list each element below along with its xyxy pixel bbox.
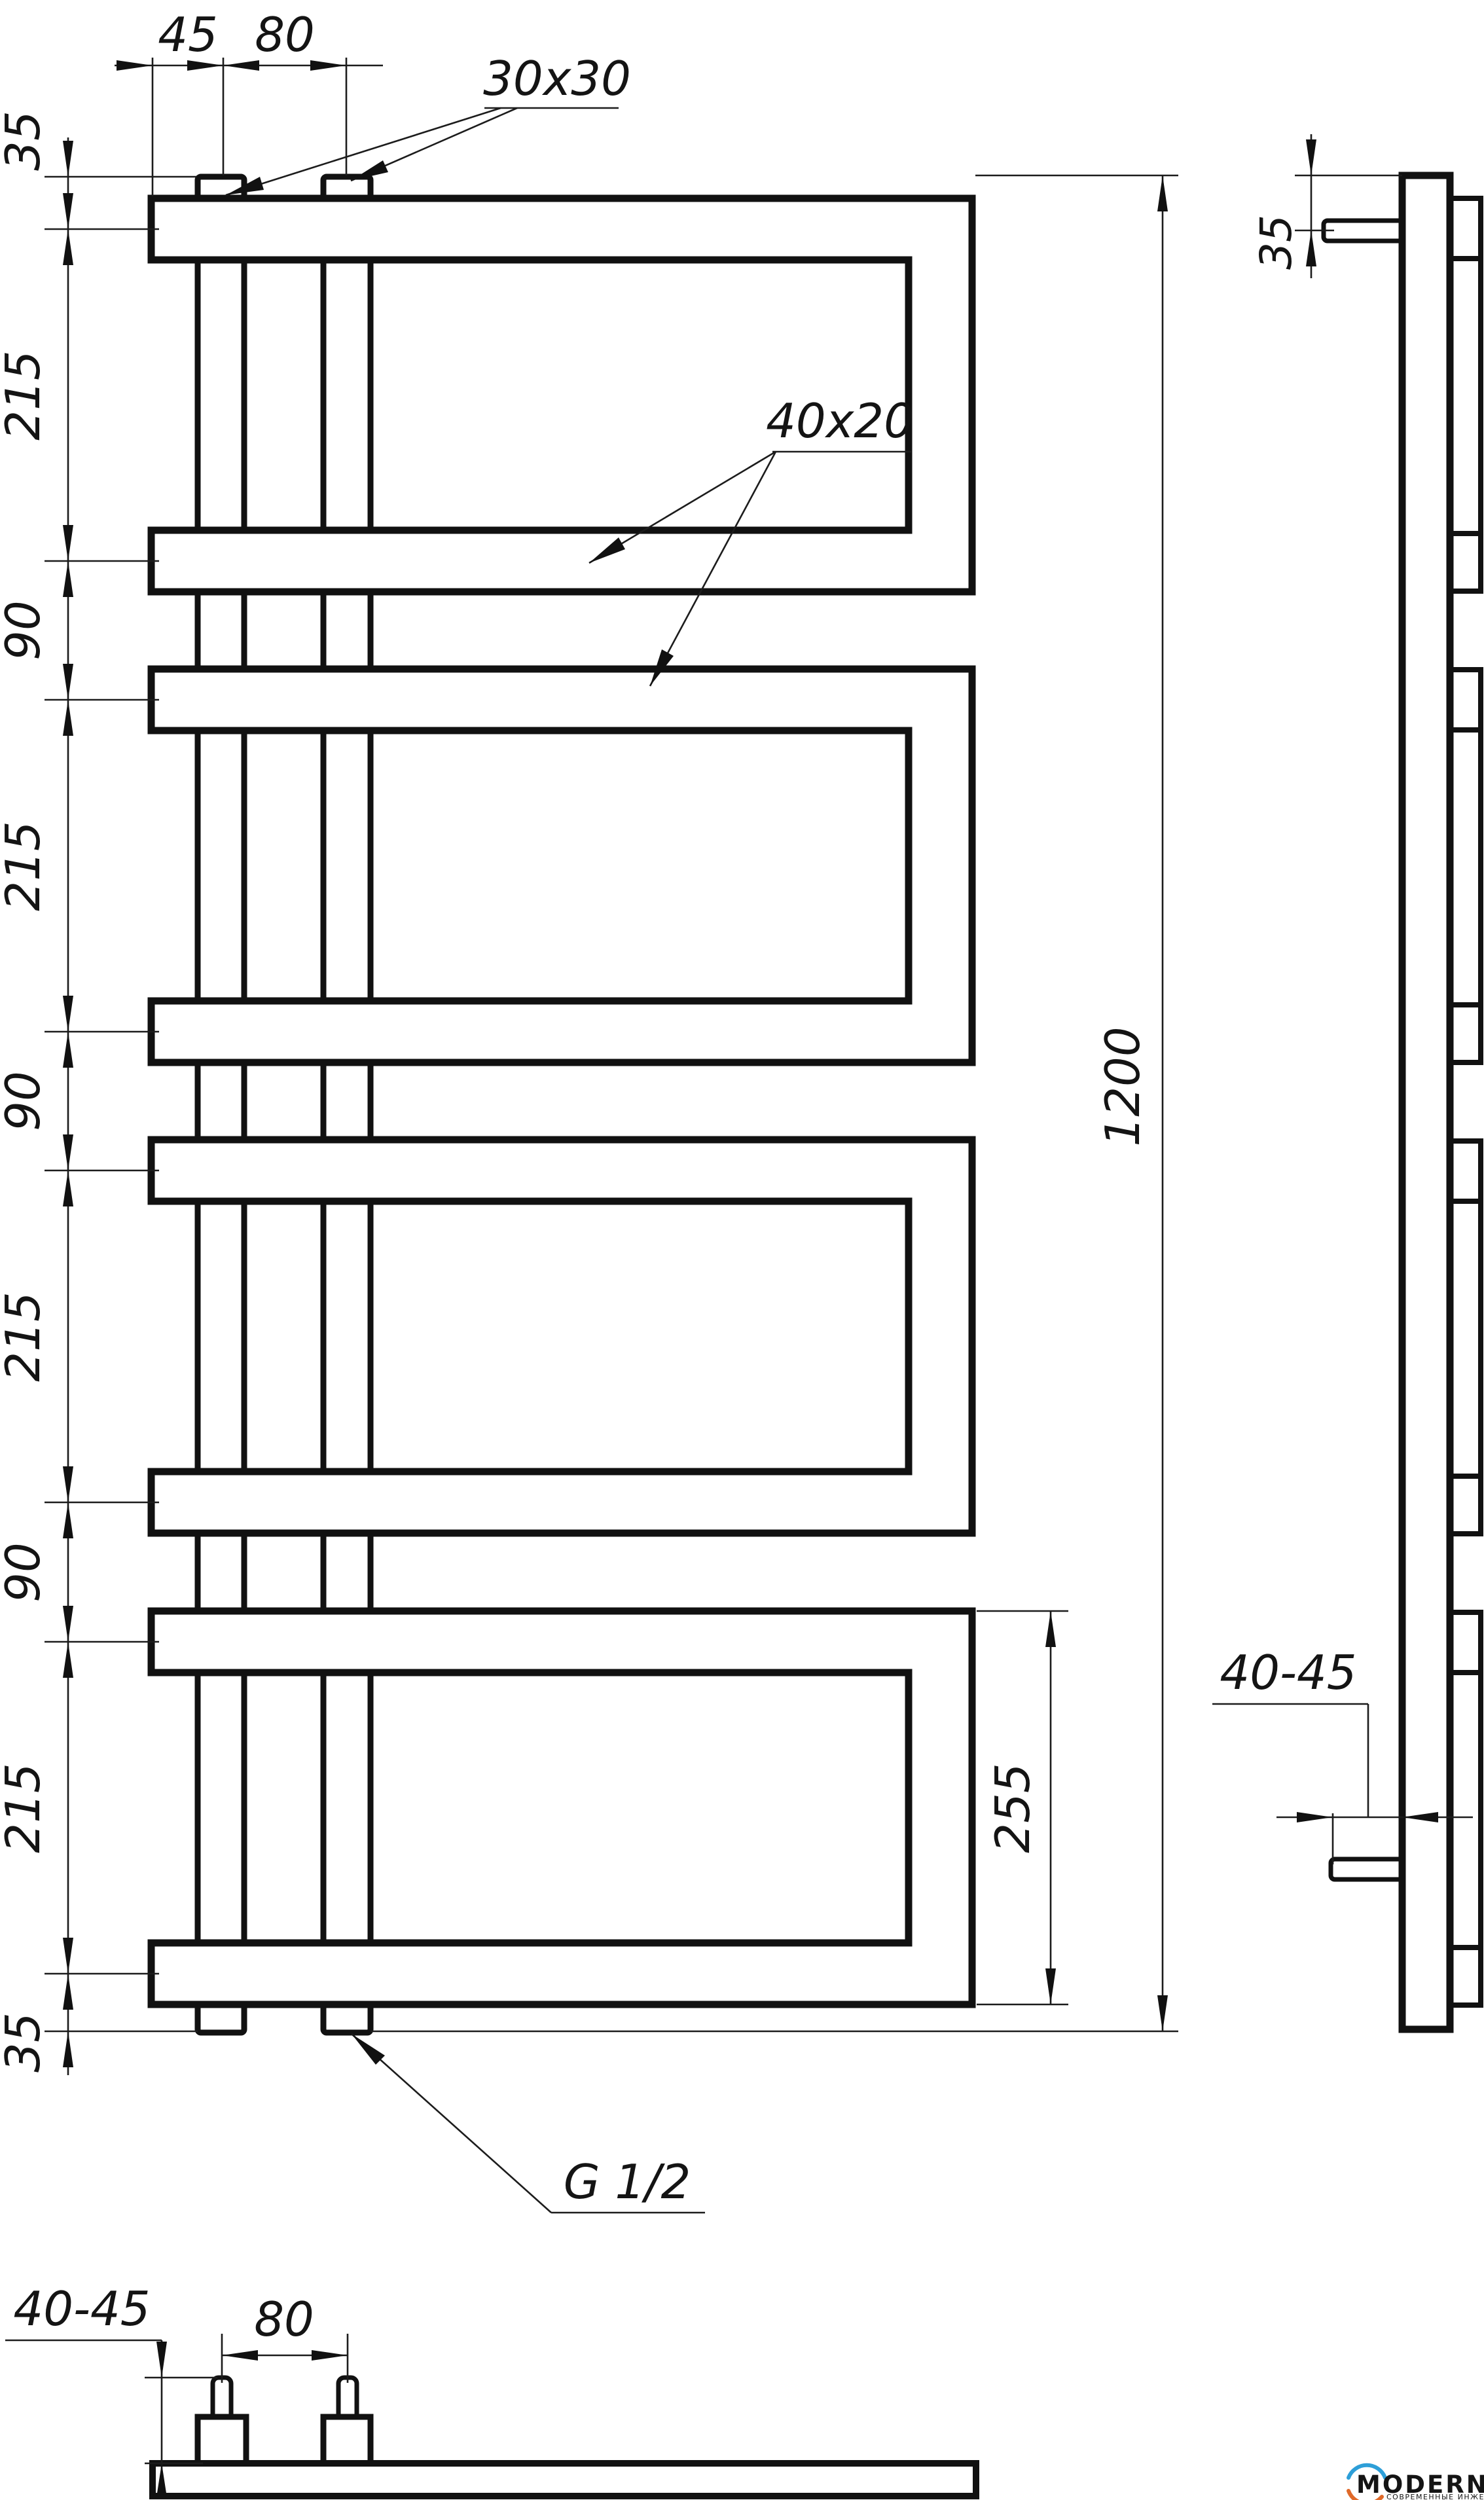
wall-bracket-rail xyxy=(1450,198,1481,2005)
dimension-arrows xyxy=(63,60,1438,2497)
bottom-connection-pipe-side xyxy=(1331,1859,1403,1879)
side-dim-35: 35 xyxy=(1251,215,1301,270)
label-40x20: 40x20 xyxy=(766,393,914,448)
top-connection-pipe-side xyxy=(1324,221,1403,241)
towel-rail-technical-drawing: 45 80 30x30 40x20 35 215 90 215 90 215 9… xyxy=(0,0,1484,2500)
dim-45: 45 xyxy=(158,7,218,62)
chain-90-1: 90 xyxy=(0,600,50,661)
chain-215-2: 215 xyxy=(0,821,50,911)
logo: MODERNSYS СОВРЕМЕННЫЕ ИНЖЕНЕРНЫЕ СИСТЕМЫ xyxy=(1348,2465,1484,2500)
label-30x30: 30x30 xyxy=(483,51,631,106)
drawing-sheet: 45 80 30x30 40x20 35 215 90 215 90 215 9… xyxy=(0,0,1484,2500)
vertical-tube-right xyxy=(323,177,371,2033)
tube-section-left xyxy=(198,2417,246,2463)
bottom-view xyxy=(153,2378,976,2496)
bottom-dim-40-45: 40-45 xyxy=(13,2281,150,2336)
chain-90-2: 90 xyxy=(0,1071,50,1131)
chain-215-3: 215 xyxy=(0,1292,50,1381)
side-dim-40-45: 40-45 xyxy=(1220,1645,1356,1700)
chain-215-1: 215 xyxy=(0,350,50,440)
loop-2 xyxy=(151,669,972,1062)
vertical-tube-side xyxy=(1402,175,1450,2029)
front-view xyxy=(151,177,972,2033)
chain-35-top: 35 xyxy=(0,111,50,171)
dim-80: 80 xyxy=(255,7,315,62)
side-view xyxy=(1324,175,1481,2029)
chain-90-3: 90 xyxy=(0,1542,50,1603)
bar-profile-bottom xyxy=(153,2463,976,2496)
loop-3 xyxy=(151,1140,972,1533)
label-g12: G 1/2 xyxy=(564,2154,691,2209)
vertical-tube-left xyxy=(198,177,244,2033)
bottom-dim-80: 80 xyxy=(254,2292,314,2347)
loop-4 xyxy=(151,1611,972,2004)
logo-tagline-text: СОВРЕМЕННЫЕ ИНЖЕНЕРНЫЕ СИСТЕМЫ xyxy=(1386,2493,1484,2500)
chain-35-bottom: 35 xyxy=(0,2012,50,2073)
dim-1200: 1200 xyxy=(1095,1026,1150,1146)
tube-section-right xyxy=(323,2417,371,2463)
dim-255: 255 xyxy=(985,1763,1040,1853)
chain-215-4: 215 xyxy=(0,1763,50,1853)
